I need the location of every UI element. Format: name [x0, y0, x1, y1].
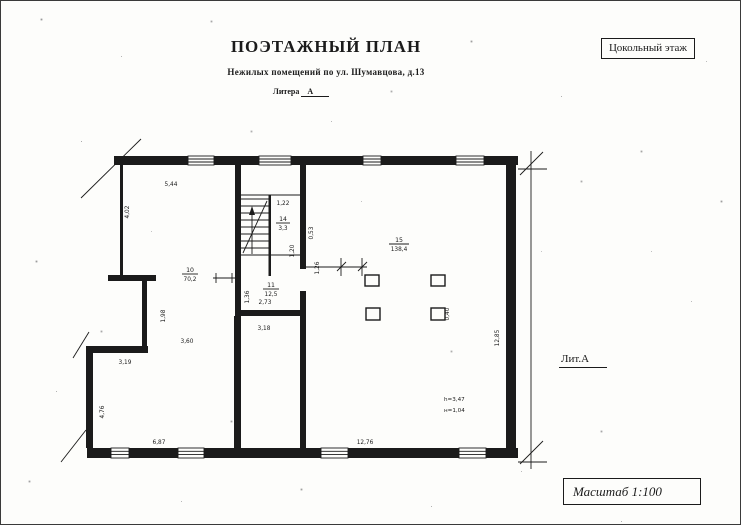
left-wall-upper [120, 164, 123, 276]
right-wall [506, 156, 516, 458]
room-11-label: 11 12,5 [263, 282, 279, 298]
dim-slash-top-left [81, 139, 141, 198]
window [178, 448, 204, 458]
window [188, 156, 214, 165]
stair-divider-wall [269, 195, 272, 276]
stair-left-wall [235, 165, 241, 316]
scanned-floorplan-page: ПОЭТАЖНЫЙ ПЛАН Нежилых помещений по ул. … [0, 0, 741, 525]
floor-plan-drawing: 10 70,2 11 12,5 14 3,3 15 138,4 5,44 [1, 1, 741, 525]
svg-text:10: 10 [186, 267, 194, 274]
column [431, 308, 445, 320]
dim-slash-bottom-left [61, 430, 86, 462]
window [111, 448, 129, 458]
dim-room10-width: 3,60 [181, 339, 194, 345]
left-step-top-wall [108, 275, 156, 281]
left-wall-lower [86, 353, 93, 448]
window [259, 156, 291, 165]
dim-left-mid-height: 1,98 [161, 309, 167, 322]
staircase [241, 195, 300, 276]
dim-right-height: 12,85 [495, 329, 501, 346]
windows [111, 156, 486, 458]
left-step-bottom-wall [86, 346, 148, 353]
svg-text:70,2: 70,2 [184, 277, 197, 283]
window [321, 448, 348, 458]
dim-left-upper-height: 4,02 [125, 205, 131, 218]
dim-bottom-left-width: 6,87 [153, 440, 166, 446]
dim-stair-top-width: 1,22 [277, 201, 290, 207]
svg-text:12,5: 12,5 [265, 292, 278, 298]
room-15-label: 15 138,4 [389, 237, 409, 253]
dim-bottom-right-width: 12,76 [357, 440, 374, 446]
dim-room11-width: 2,73 [259, 300, 272, 306]
bottom-wall [87, 448, 518, 458]
dim-step-width: 3,19 [119, 360, 132, 366]
dim-top-left-width: 5,44 [165, 182, 178, 188]
dim-stair-opening: 1,26 [315, 261, 321, 274]
dim-room11-left: 1,36 [245, 290, 251, 303]
note-ceiling-height: h=3,47 [444, 397, 465, 403]
corridor-left-wall [234, 316, 241, 448]
dim-slash-right-bottom [520, 441, 543, 464]
stair-right-wall-upper [300, 165, 306, 269]
column [431, 275, 445, 286]
svg-text:15: 15 [395, 237, 403, 244]
stair-bottom-wall [235, 310, 306, 316]
svg-text:11: 11 [267, 282, 275, 289]
dim-column-size: 0,40 [445, 307, 451, 320]
dim-left-lower-height: 4,76 [100, 405, 106, 418]
note-depth: н=1,04 [444, 408, 465, 414]
column [365, 275, 379, 286]
columns [365, 275, 445, 320]
room-10-label: 10 70,2 [182, 267, 198, 283]
dim-stair-inner: 1,20 [290, 244, 296, 257]
window [363, 156, 381, 165]
dim-slash-right-top [520, 152, 543, 175]
room-14-label: 14 3,3 [276, 216, 290, 232]
column [366, 308, 380, 320]
svg-text:138,4: 138,4 [391, 247, 408, 253]
dim-stair-pier: 0,53 [309, 226, 315, 239]
window [456, 156, 484, 165]
window [459, 448, 486, 458]
dim-corridor-width: 3,18 [258, 326, 271, 332]
svg-text:3,3: 3,3 [278, 226, 288, 232]
svg-text:14: 14 [279, 216, 287, 223]
left-wall-mid [142, 281, 147, 348]
stair-arrow-head [249, 206, 255, 215]
